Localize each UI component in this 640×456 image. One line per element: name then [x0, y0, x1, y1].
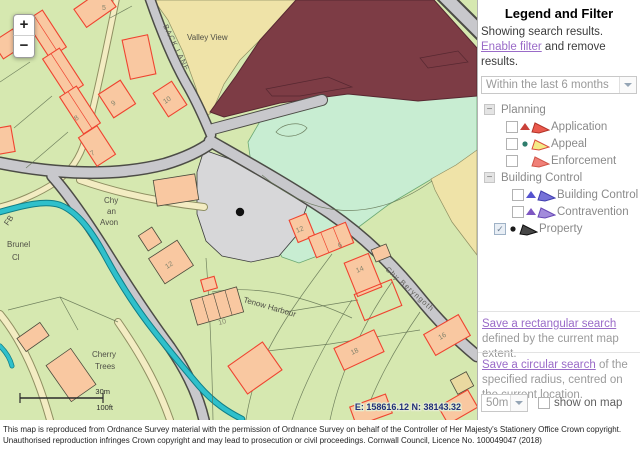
legend-item-label[interactable]: Enforcement	[551, 155, 616, 167]
radius-select[interactable]: 50m	[481, 394, 528, 412]
legend-item-checkbox[interactable]	[512, 189, 524, 201]
legend-item-label[interactable]: Property	[539, 223, 582, 235]
legend-triangle-marker-icon	[524, 207, 537, 216]
legend-item-checkbox[interactable]	[506, 138, 518, 150]
map-label: 5	[102, 5, 106, 12]
flag-icon	[537, 205, 556, 219]
legend-item-row: Contravention	[478, 203, 640, 220]
map-label: Brunel	[7, 240, 30, 249]
flag-icon	[531, 154, 550, 168]
legend-item-label[interactable]: Application	[551, 121, 607, 133]
results-status-text: Showing search results. Enable filter an…	[478, 25, 640, 70]
map-label: Cl	[12, 253, 20, 262]
zoom-in-button[interactable]: +	[13, 14, 35, 36]
legend-item-row: Building Control	[478, 186, 640, 203]
zoom-out-button[interactable]: −	[13, 36, 35, 58]
collapse-toggle[interactable]: −	[484, 172, 495, 183]
map-label: Valley View	[187, 33, 228, 42]
flag-icon	[519, 222, 538, 236]
scale-metric-label: 30m	[95, 387, 110, 396]
legend-triangle-marker-icon	[518, 122, 531, 131]
flag-icon	[537, 188, 556, 202]
map-marker-dot	[236, 208, 244, 216]
status-text-pre: Showing search results.	[481, 26, 603, 38]
legend-dot-marker-icon	[518, 140, 531, 148]
collapse-toggle[interactable]: −	[484, 104, 495, 115]
flag-icon	[531, 137, 550, 151]
map-label: Chy	[104, 196, 118, 205]
flag-icon	[531, 120, 550, 134]
legend-group-label[interactable]: Planning	[501, 104, 546, 116]
panel-title: Legend and Filter	[478, 6, 640, 21]
legend-dot-marker-icon	[506, 225, 519, 233]
radius-value: 50m	[486, 397, 508, 409]
save-rectangular-search-link[interactable]: Save a rectangular search	[482, 318, 616, 330]
map-canvas[interactable]: Valley ViewBACK LANEChyanAvonBrunelClFBC…	[0, 0, 478, 420]
map-svg: Valley ViewBACK LANEChyanAvonBrunelClFBC…	[0, 0, 477, 420]
app-window: Valley ViewBACK LANEChyanAvonBrunelClFBC…	[0, 0, 640, 420]
legend-item-checkbox[interactable]	[506, 155, 518, 167]
legend-group-row: −Planning	[478, 101, 640, 118]
legend-item-row: Application	[478, 118, 640, 135]
show-on-map-label: show on map	[554, 397, 622, 409]
map-label: an	[107, 207, 116, 216]
show-on-map-checkbox[interactable]	[538, 397, 550, 409]
chevron-down-icon	[619, 77, 636, 93]
map-label: Trees	[95, 362, 115, 371]
radius-row: 50m show on map	[481, 394, 640, 412]
legend-item-label[interactable]: Building Control	[557, 189, 638, 201]
legend-item-row: Appeal	[478, 135, 640, 152]
legend-tree: −PlanningApplicationAppealEnforcement−Bu…	[478, 101, 640, 237]
legend-triangle-marker-icon	[524, 190, 537, 199]
legend-item-checkbox[interactable]	[506, 121, 518, 133]
legend-item-checkbox[interactable]	[494, 223, 506, 235]
chevron-down-icon	[510, 395, 527, 411]
save-circular-search-link[interactable]: Save a circular search	[482, 359, 596, 371]
legend-item-checkbox[interactable]	[512, 206, 524, 218]
legend-group-label[interactable]: Building Control	[501, 172, 582, 184]
legend-item-label[interactable]: Contravention	[557, 206, 629, 218]
enable-filter-link[interactable]: Enable filter	[481, 41, 542, 53]
legend-group-row: −Building Control	[478, 169, 640, 186]
legend-item-label[interactable]: Appeal	[551, 138, 587, 150]
legend-item-row: Enforcement	[478, 152, 640, 169]
map-label: Cherry	[92, 350, 116, 359]
copyright-notice: This map is reproduced from Ordnance Sur…	[0, 420, 640, 456]
legend-panel: Legend and Filter Showing search results…	[478, 0, 640, 420]
time-filter-select[interactable]: Within the last 6 months	[481, 76, 637, 94]
zoom-control: + −	[13, 14, 35, 58]
time-filter-value: Within the last 6 months	[486, 79, 609, 91]
coordinates-readout: E: 158616.12 N: 38143.32	[355, 402, 461, 412]
legend-item-row: Property	[478, 220, 640, 237]
scale-imperial-label: 100ft	[96, 403, 114, 412]
map-label: Avon	[100, 218, 118, 227]
